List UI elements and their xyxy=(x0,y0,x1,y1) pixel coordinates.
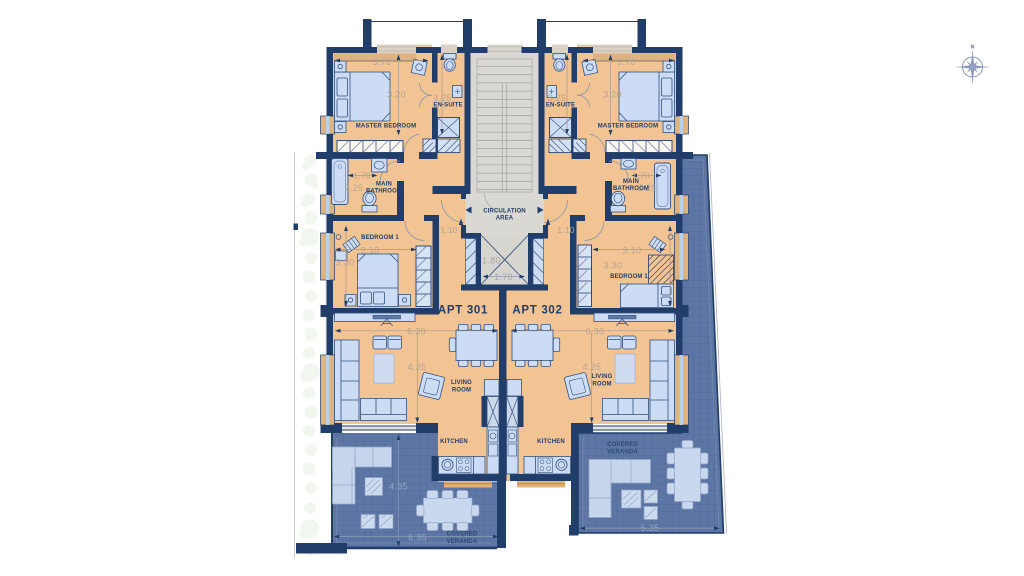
svg-text:3.20: 3.20 xyxy=(603,90,622,100)
svg-text:LIVING: LIVING xyxy=(451,380,472,386)
svg-text:2.25: 2.25 xyxy=(345,183,364,193)
svg-text:5.35: 5.35 xyxy=(641,523,660,533)
svg-text:CIRCULATION: CIRCULATION xyxy=(483,209,526,215)
svg-text:KITCHEN: KITCHEN xyxy=(440,439,468,445)
svg-text:6.35: 6.35 xyxy=(408,532,427,542)
svg-text:1.10: 1.10 xyxy=(557,225,574,235)
svg-text:1.80: 1.80 xyxy=(482,256,501,266)
svg-text:BATHROOM: BATHROOM xyxy=(613,186,649,192)
svg-text:COVERED: COVERED xyxy=(447,532,478,538)
svg-text:3.70: 3.70 xyxy=(617,57,636,67)
svg-text:1.10: 1.10 xyxy=(440,225,457,235)
svg-text:COVERED: COVERED xyxy=(607,442,638,448)
svg-text:4.25: 4.25 xyxy=(408,362,427,372)
svg-text:EN-SUITE: EN-SUITE xyxy=(433,103,462,109)
svg-text:3.30: 3.30 xyxy=(604,261,623,271)
svg-text:4.25: 4.25 xyxy=(583,362,602,372)
svg-text:3.30: 3.30 xyxy=(336,258,355,268)
svg-text:N: N xyxy=(971,45,975,51)
svg-text:MASTER BEDROOM: MASTER BEDROOM xyxy=(356,124,416,130)
svg-text:3.25: 3.25 xyxy=(548,93,567,103)
svg-text:ROOM: ROOM xyxy=(452,387,471,393)
svg-text:MAIN: MAIN xyxy=(376,182,392,188)
svg-text:3.10: 3.10 xyxy=(623,245,642,255)
svg-text:APT 302: APT 302 xyxy=(512,305,562,317)
svg-text:BEDROOM 1: BEDROOM 1 xyxy=(610,274,648,280)
svg-text:3.25: 3.25 xyxy=(433,93,452,103)
svg-text:KITCHEN: KITCHEN xyxy=(537,439,565,445)
svg-text:6.30: 6.30 xyxy=(586,327,605,337)
svg-text:1.70: 1.70 xyxy=(494,272,513,282)
svg-text:3.70: 3.70 xyxy=(373,57,392,67)
svg-text:3.10: 3.10 xyxy=(361,245,380,255)
svg-text:1.70: 1.70 xyxy=(353,171,370,181)
svg-text:BEDROOM 1: BEDROOM 1 xyxy=(361,235,399,241)
svg-text:MAIN: MAIN xyxy=(623,179,639,185)
svg-text:EN-SUITE: EN-SUITE xyxy=(546,103,575,109)
svg-text:AREA: AREA xyxy=(496,216,514,222)
svg-text:3.20: 3.20 xyxy=(387,90,406,100)
svg-text:BATHROOM: BATHROOM xyxy=(366,189,402,195)
svg-text:VERANDA: VERANDA xyxy=(447,539,478,545)
svg-text:APT 301: APT 301 xyxy=(438,305,488,317)
svg-text:MASTER BEDROOM: MASTER BEDROOM xyxy=(598,124,658,130)
svg-text:VERANDA: VERANDA xyxy=(607,449,638,455)
svg-text:LIVING: LIVING xyxy=(592,374,613,380)
svg-text:6.30: 6.30 xyxy=(407,327,426,337)
svg-text:ROOM: ROOM xyxy=(592,381,611,387)
svg-text:4.35: 4.35 xyxy=(389,482,408,492)
